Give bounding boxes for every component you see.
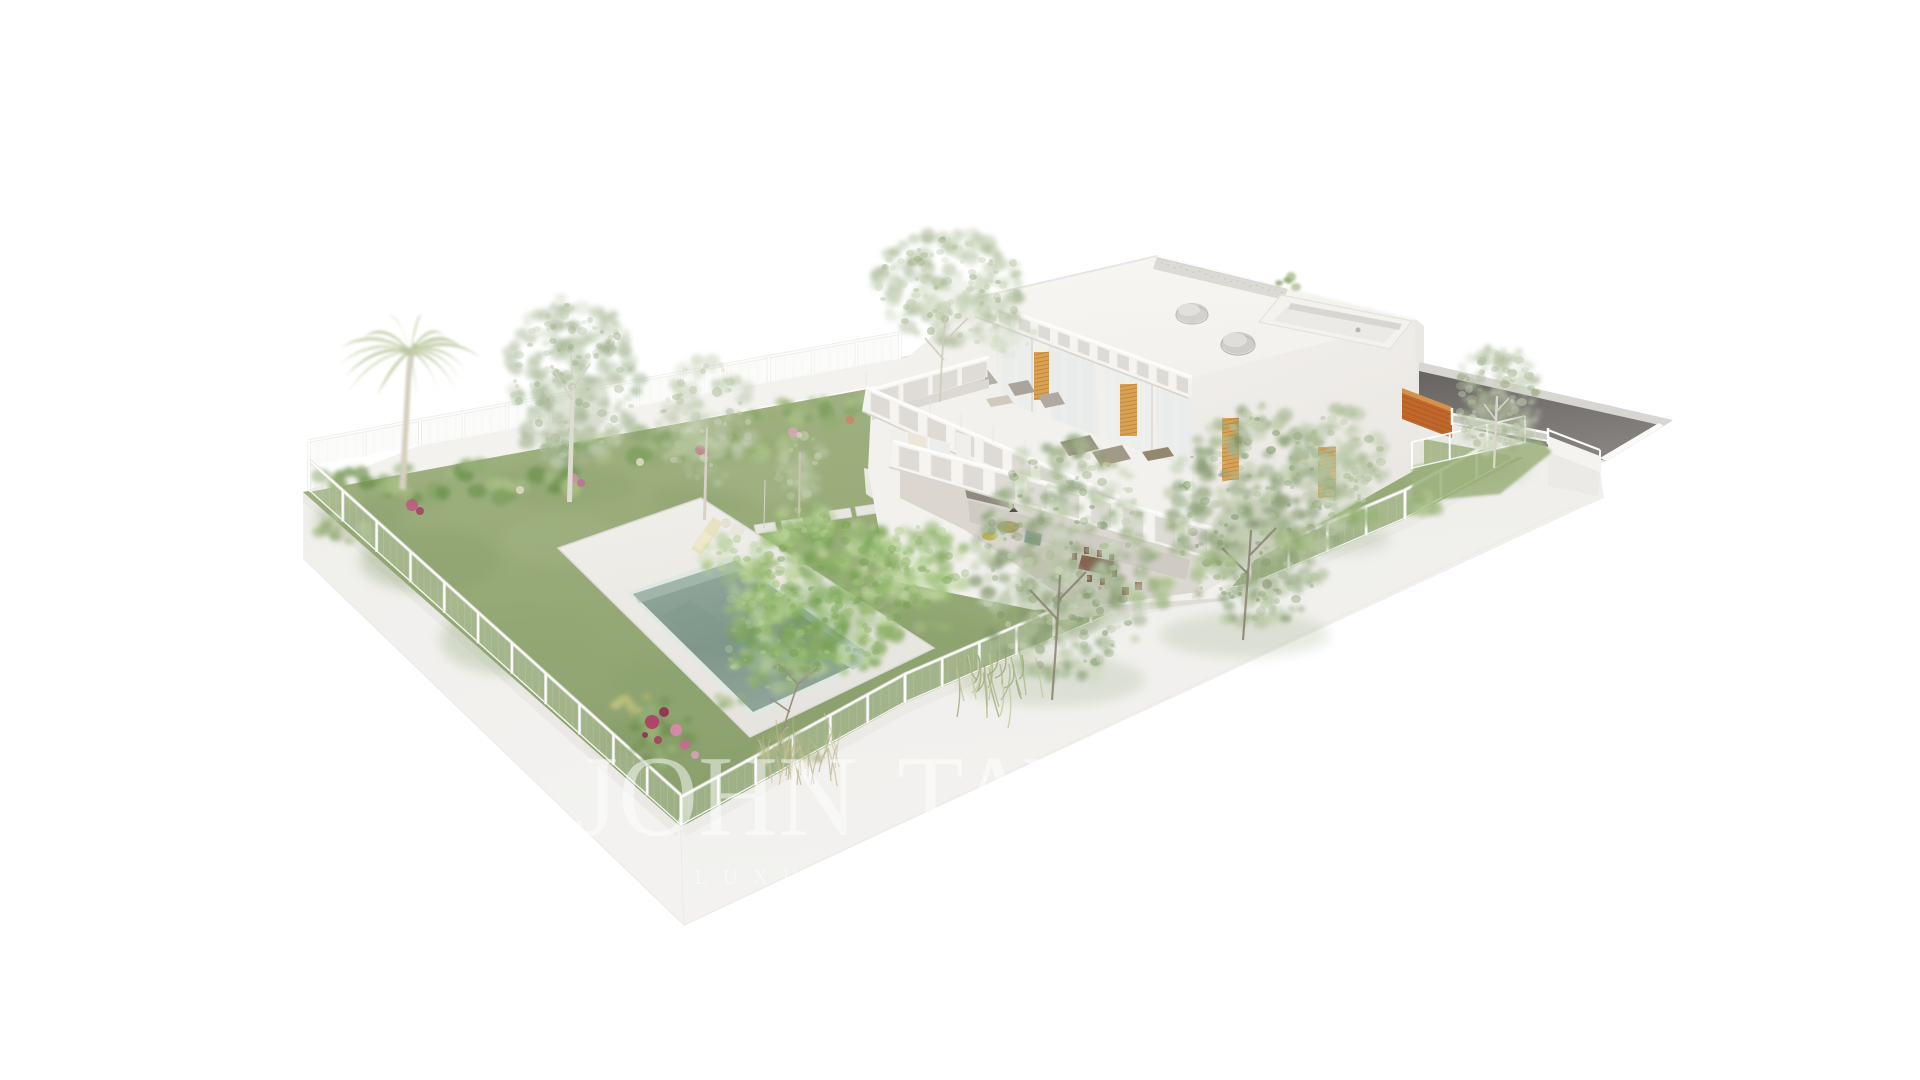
svg-text:LUXURY REAL ESTATE: LUXURY REAL ESTATE xyxy=(695,865,1189,889)
svg-text:JOHN: JOHN xyxy=(575,733,858,860)
svg-text:TAYLOR: TAYLOR xyxy=(897,733,1322,860)
